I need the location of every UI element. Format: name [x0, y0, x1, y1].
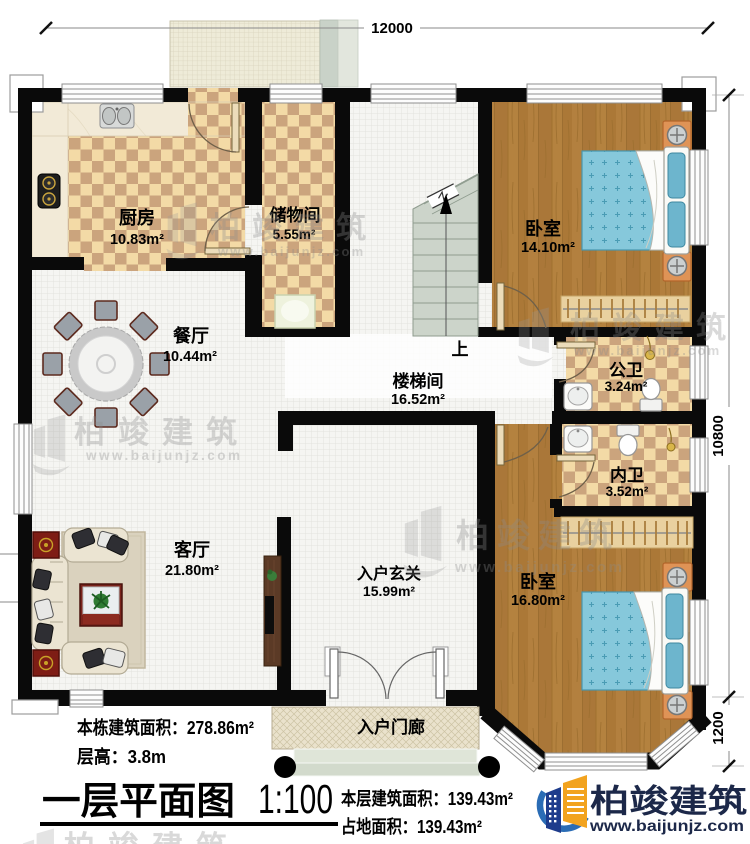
- svg-text:www.baijunjz.com: www.baijunjz.com: [85, 448, 243, 463]
- svg-text:柏竣建筑: 柏竣建筑: [64, 830, 240, 844]
- svg-text:柏竣建筑: 柏竣建筑: [74, 415, 250, 450]
- svg-text:柏竣建筑: 柏竣建筑: [570, 311, 738, 345]
- svg-text:餐厅: 餐厅: [172, 325, 209, 346]
- svg-text:占地面积：139.43m²: 占地面积：139.43m²: [341, 816, 482, 837]
- svg-text:客厅: 客厅: [174, 539, 210, 560]
- svg-text:10.44m²: 10.44m²: [163, 349, 217, 365]
- svg-text:21.80m²: 21.80m²: [165, 563, 219, 579]
- svg-text:内卫: 内卫: [610, 465, 644, 485]
- svg-text:卧室: 卧室: [525, 218, 561, 239]
- svg-text:10.83m²: 10.83m²: [110, 232, 164, 248]
- svg-text:厨房: 厨房: [119, 207, 155, 228]
- svg-text:柏竣建筑: 柏竣建筑: [456, 517, 620, 554]
- svg-text:楼梯间: 楼梯间: [393, 371, 444, 391]
- svg-text:16.52m²: 16.52m²: [391, 392, 445, 408]
- svg-text:www.baijunjz.com: www.baijunjz.com: [589, 818, 744, 835]
- svg-text:3.24m²: 3.24m²: [605, 379, 648, 394]
- svg-text:本栋建筑面积：278.86m²: 本栋建筑面积：278.86m²: [77, 717, 254, 738]
- svg-text:12000: 12000: [371, 20, 413, 37]
- svg-text:14.10m²: 14.10m²: [521, 240, 575, 256]
- svg-text:www.baijunjz.com: www.baijunjz.com: [573, 343, 721, 358]
- svg-text:公卫: 公卫: [609, 361, 643, 380]
- svg-text:www.baijunjz.com: www.baijunjz.com: [454, 559, 624, 576]
- svg-text:10800: 10800: [710, 415, 727, 457]
- svg-text:层高：3.8m: 层高：3.8m: [77, 746, 166, 767]
- svg-text:1:100: 1:100: [258, 776, 333, 822]
- svg-text:柏竣建筑: 柏竣建筑: [210, 211, 378, 245]
- svg-text:上: 上: [452, 340, 469, 359]
- svg-text:3.52m²: 3.52m²: [606, 484, 649, 499]
- svg-text:柏竣建筑: 柏竣建筑: [590, 783, 747, 819]
- svg-text:入户门廊: 入户门廊: [357, 717, 425, 737]
- svg-text:16.80m²: 16.80m²: [511, 593, 565, 609]
- svg-text:本层建筑面积：139.43m²: 本层建筑面积：139.43m²: [341, 788, 513, 809]
- svg-text:1200: 1200: [710, 711, 727, 744]
- svg-text:www.baijunjz.com: www.baijunjz.com: [217, 244, 365, 259]
- svg-text:一层平面图: 一层平面图: [42, 781, 235, 823]
- svg-text:15.99m²: 15.99m²: [363, 583, 415, 599]
